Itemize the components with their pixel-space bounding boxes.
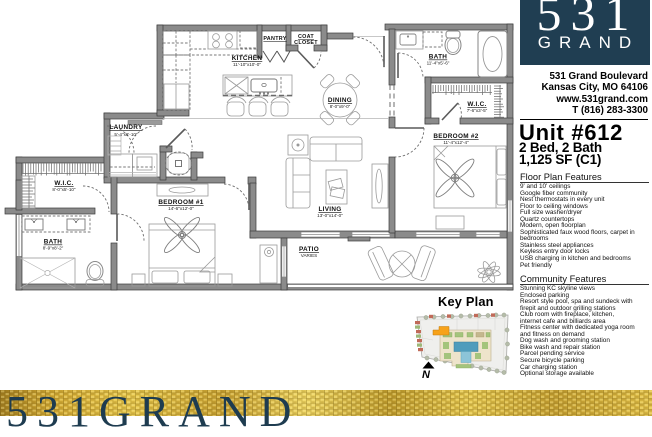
svg-text:KITCHEN: KITCHEN [232,55,263,62]
svg-text:VARIES: VARIES [301,253,318,258]
svg-text:11'-4"x12'-4": 11'-4"x12'-4" [443,140,469,145]
svg-text:BATH: BATH [429,54,448,61]
svg-text:5'-4"x6'-10": 5'-4"x6'-10" [114,132,138,137]
svg-text:PANTRY: PANTRY [263,36,286,42]
svg-text:14'-6"x12'-0": 14'-6"x12'-0" [168,206,194,211]
svg-text:BEDROOM #1: BEDROOM #1 [158,199,203,206]
svg-text:CLOSET: CLOSET [294,40,318,46]
svg-text:8'-0"x9'-0": 8'-0"x9'-0" [330,104,351,109]
svg-text:11'-10"x10'-0": 11'-10"x10'-0" [233,62,261,67]
svg-text:8'-0"x5'-10": 8'-0"x5'-10" [52,187,76,192]
svg-text:N: N [422,369,431,381]
svg-text:7'-6"x3'-5": 7'-6"x3'-5" [467,108,488,113]
svg-text:DINING: DINING [328,97,352,104]
svg-text:PATIO: PATIO [299,246,319,253]
svg-text:LAUNDRY: LAUNDRY [109,124,143,131]
svg-text:BEDROOM #2: BEDROOM #2 [433,133,478,140]
svg-text:LIVING: LIVING [318,206,341,213]
svg-text:BATH: BATH [44,239,63,246]
svg-text:13'-0"x14'-0": 13'-0"x14'-0" [317,213,343,218]
svg-text:11'-4"x5'-6": 11'-4"x5'-6" [427,61,450,66]
svg-text:8'-9"x8'-2": 8'-9"x8'-2" [43,246,64,251]
svg-text:W.I.C.: W.I.C. [467,101,486,108]
svg-text:W.I.C.: W.I.C. [54,180,73,187]
